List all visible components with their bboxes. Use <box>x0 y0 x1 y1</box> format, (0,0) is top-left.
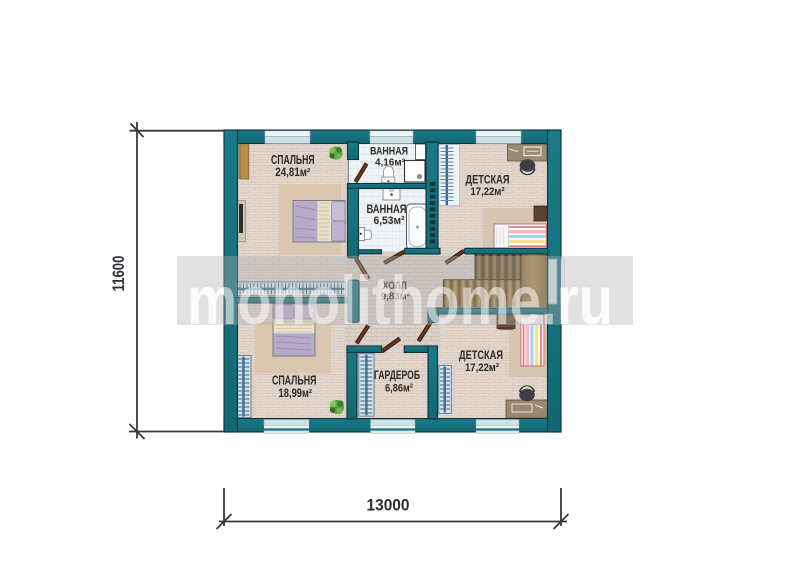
svg-text:monolithome.ru: monolithome.ru <box>187 262 613 339</box>
svg-text:24,81м²: 24,81м² <box>275 167 310 179</box>
svg-text:6,53м²: 6,53м² <box>374 215 405 227</box>
svg-text:6,86м²: 6,86м² <box>385 383 413 395</box>
svg-text:ГАРДЕРОБ: ГАРДЕРОБ <box>374 370 420 382</box>
svg-text:11600: 11600 <box>110 256 128 292</box>
svg-text:ДЕТСКАЯ: ДЕТСКАЯ <box>459 348 503 362</box>
svg-text:ДЕТСКАЯ: ДЕТСКАЯ <box>466 173 510 187</box>
svg-text:17,22м²: 17,22м² <box>465 362 499 374</box>
svg-text:17,22м²: 17,22м² <box>471 186 505 198</box>
svg-text:СПАЛЬНЯ: СПАЛЬНЯ <box>272 374 317 388</box>
svg-text:13000: 13000 <box>367 497 410 515</box>
svg-text:18,99м²: 18,99м² <box>279 388 313 400</box>
svg-text:СПАЛЬНЯ: СПАЛЬНЯ <box>271 153 315 167</box>
svg-text:4,16м²: 4,16м² <box>375 157 405 169</box>
